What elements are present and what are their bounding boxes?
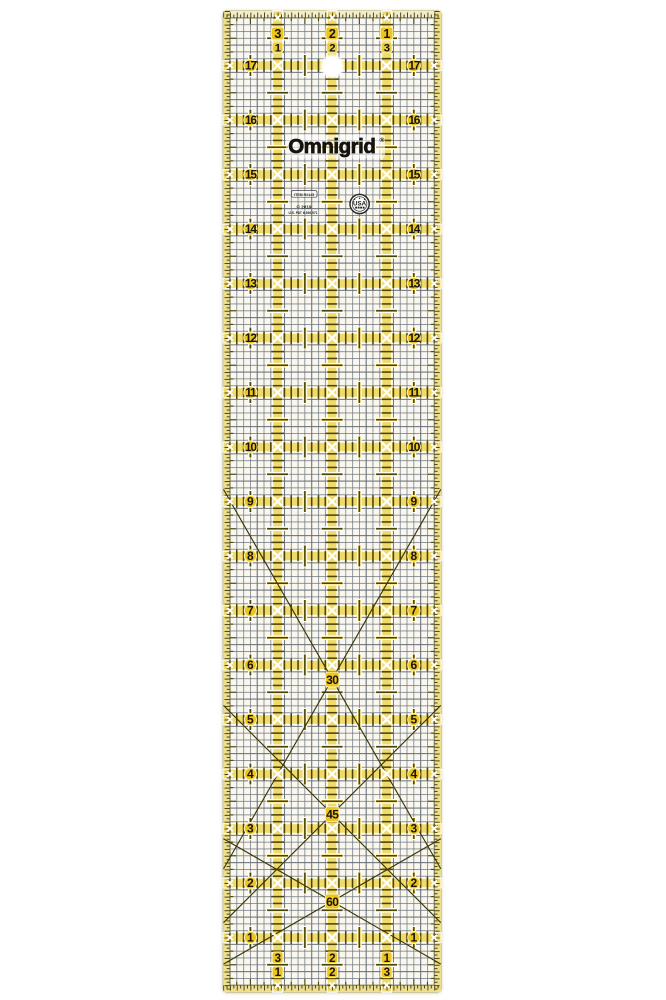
svg-text:7: 7	[410, 604, 417, 618]
svg-text:3: 3	[384, 966, 391, 979]
svg-text:16: 16	[245, 113, 257, 127]
svg-text:6: 6	[247, 658, 254, 672]
svg-text:U.S. PAT 6,936,971: U.S. PAT 6,936,971	[288, 211, 317, 215]
svg-text:1: 1	[275, 43, 281, 55]
svg-text:10: 10	[408, 440, 420, 454]
svg-text:2: 2	[329, 27, 336, 41]
svg-text:45: 45	[326, 808, 339, 822]
svg-text:2: 2	[410, 876, 417, 890]
svg-text:®: ®	[380, 136, 385, 144]
svg-text:6: 6	[410, 658, 417, 672]
svg-text:4: 4	[247, 767, 254, 781]
svg-text:3: 3	[247, 822, 254, 836]
svg-text:17: 17	[408, 59, 420, 73]
svg-text:17: 17	[245, 59, 257, 73]
svg-text:3: 3	[410, 822, 417, 836]
svg-text:3: 3	[274, 27, 281, 41]
svg-text:5: 5	[410, 713, 417, 727]
svg-text:60: 60	[326, 895, 339, 909]
svg-text:1: 1	[410, 931, 417, 945]
svg-text:2: 2	[247, 876, 254, 890]
svg-text:10: 10	[245, 440, 257, 454]
svg-text:12: 12	[408, 331, 420, 345]
svg-text:4: 4	[410, 767, 417, 781]
svg-text:15: 15	[245, 168, 257, 182]
svg-text:8: 8	[410, 549, 417, 563]
svg-text:2: 2	[329, 43, 335, 55]
svg-text:1: 1	[247, 931, 254, 945]
svg-text:9: 9	[410, 495, 417, 509]
svg-text:© 2019: © 2019	[297, 203, 312, 209]
svg-text:5: 5	[247, 713, 254, 727]
svg-text:13: 13	[245, 277, 257, 291]
svg-text:7: 7	[247, 604, 254, 618]
svg-text:30: 30	[326, 673, 339, 687]
svg-text:13: 13	[408, 277, 420, 291]
svg-text:1: 1	[275, 966, 282, 979]
svg-text:8: 8	[247, 549, 254, 563]
svg-text:16: 16	[408, 113, 420, 127]
svg-text:14: 14	[245, 222, 257, 236]
svg-text:Omnigrid: Omnigrid	[288, 135, 375, 158]
svg-text:12: 12	[245, 331, 257, 345]
svg-text:3: 3	[384, 43, 390, 55]
svg-text:9: 9	[247, 495, 254, 509]
svg-text:USA: USA	[353, 200, 367, 207]
svg-text:ITEM R#145: ITEM R#145	[294, 193, 314, 197]
svg-text:2: 2	[329, 952, 335, 965]
svg-text:15: 15	[408, 168, 420, 182]
svg-text:11: 11	[245, 386, 257, 400]
svg-text:2: 2	[329, 966, 335, 979]
svg-text:1: 1	[384, 952, 391, 965]
svg-text:11: 11	[409, 386, 421, 400]
svg-text:3: 3	[275, 952, 282, 965]
svg-text:1: 1	[383, 27, 390, 41]
svg-text:14: 14	[408, 222, 420, 236]
